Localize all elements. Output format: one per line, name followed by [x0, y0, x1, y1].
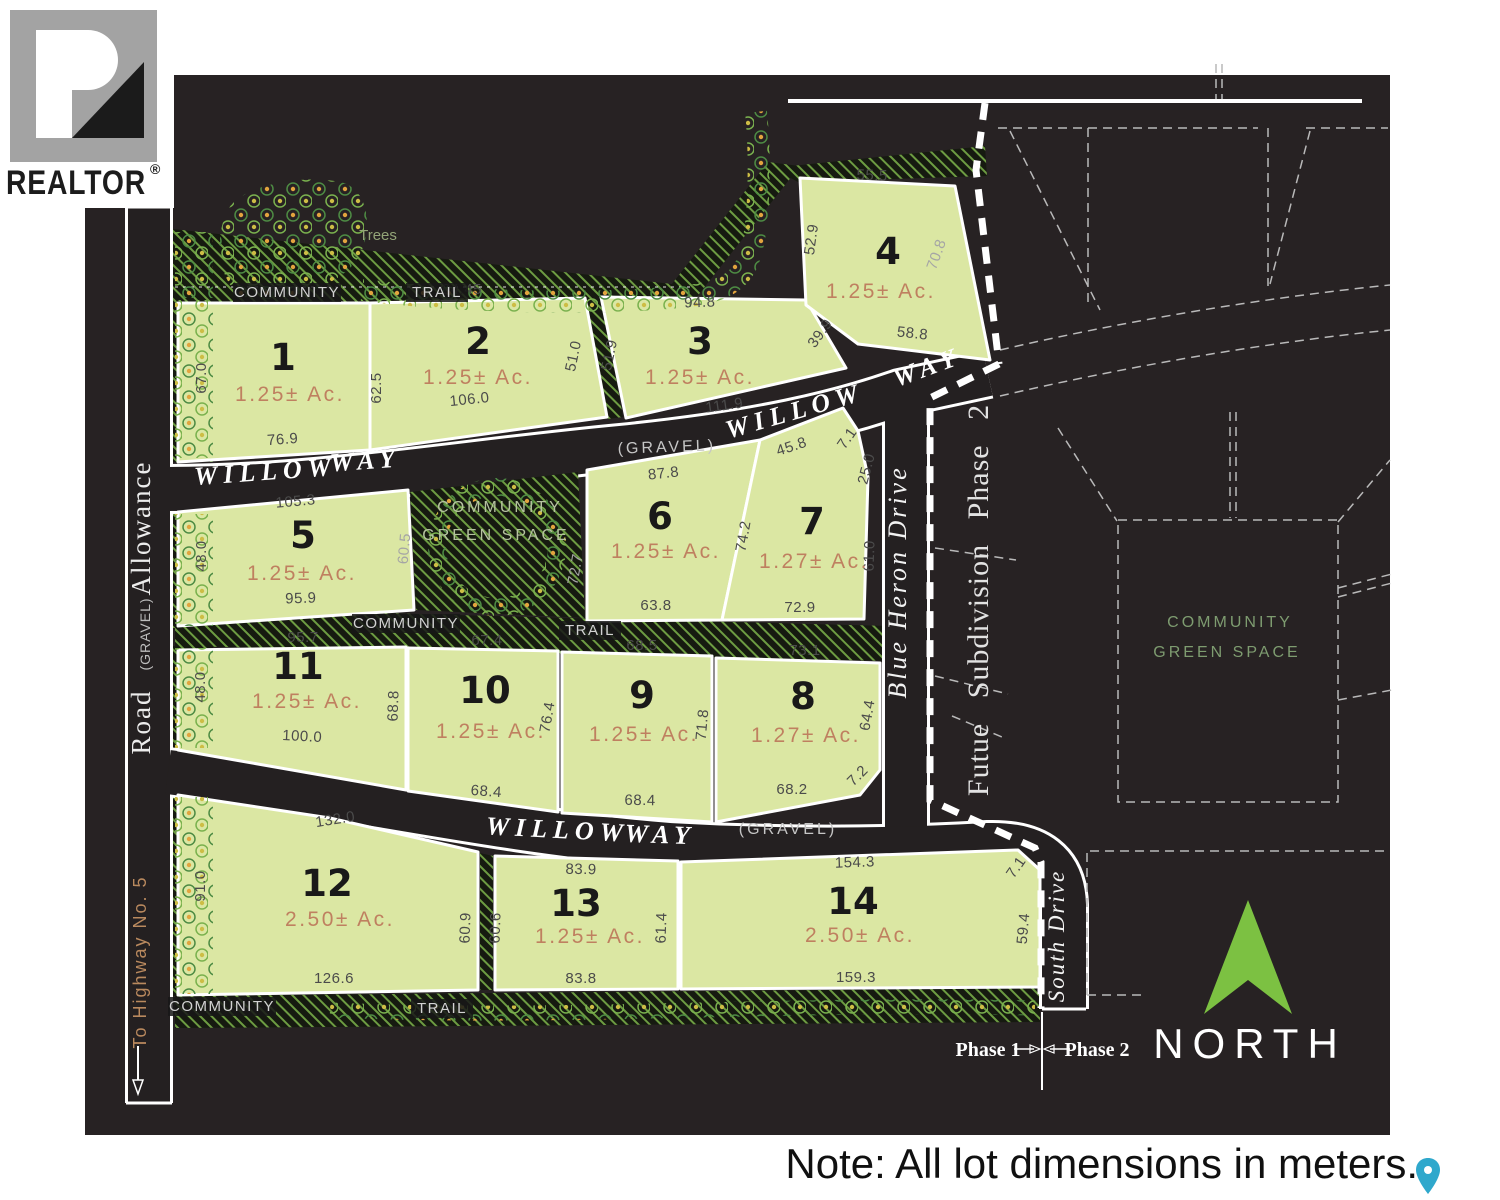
subdivision-plat-map: NORTH REALTOR ® 76.167.076.962.594.45106… [0, 0, 1500, 1200]
dimension-label: 68.5 [626, 637, 657, 654]
trail-label: COMMUNITY [234, 284, 340, 301]
dimension-label: 95.9 [285, 589, 317, 607]
dimension-label: 68.4 [470, 782, 502, 801]
dimension-label: 95.7 [287, 629, 318, 646]
dimension-label: 48.0 [192, 671, 209, 702]
lot-area-label: 1.27± Ac. [759, 550, 869, 573]
road-name-label: South Drive [1044, 870, 1069, 1003]
registered-trademark-symbol: ® [150, 161, 161, 177]
dimension-label: 60.6 [486, 912, 504, 944]
dimension-label: 68.4 [624, 792, 655, 810]
road-name-label: (GRAVEL) [617, 437, 716, 457]
map-annotation: GREEN SPACE [1153, 644, 1300, 661]
map-annotation: Phase 2 [1065, 1039, 1130, 1061]
lot-number: 7 [799, 500, 825, 543]
map-annotation: COMMUNITY [437, 499, 563, 516]
lot-number: 3 [687, 320, 713, 363]
lot-area-label: 1.25± Ac. [645, 366, 755, 389]
lot-number: 1 [270, 336, 296, 379]
lot-area-label: 1.25± Ac. [423, 366, 533, 389]
road-name-label: Road [126, 690, 156, 755]
lot-area-label: 1.25± Ac. [252, 690, 362, 713]
trail-label: COMMUNITY [353, 615, 459, 632]
lot-number: 6 [647, 495, 673, 538]
lot-number: 5 [290, 514, 316, 557]
dimension-label: 76.9 [267, 430, 299, 449]
green-space-phase1 [410, 472, 585, 618]
lot-area-label: 1.25± Ac. [826, 280, 936, 303]
lot-number: 9 [629, 674, 655, 717]
lot-area-label: 1.27± Ac. [751, 724, 861, 747]
lot-number: 8 [790, 675, 816, 718]
dimension-label: 55.5 [856, 166, 888, 184]
lot-number: 10 [459, 669, 511, 712]
dimension-label: 94.8 [684, 293, 716, 311]
map-annotation: Trees [359, 227, 397, 244]
map-annotation: GREEN SPACE [422, 527, 569, 544]
road-name-label: To Highway No. 5 [130, 875, 150, 1048]
road-name-label: (GRAVEL) [137, 597, 153, 670]
dimension-label: 73.1 [789, 642, 820, 659]
dimension-label: 48.0 [193, 540, 210, 571]
trail-label: TRAIL [565, 622, 615, 639]
lot-number: 11 [272, 645, 324, 688]
dimension-label: 62.5 [368, 372, 385, 403]
lot-number: 12 [301, 862, 353, 905]
lot-number: 13 [550, 882, 602, 925]
dimension-label: 100.0 [282, 727, 323, 746]
lot-number: 14 [827, 880, 879, 923]
dimension-label: 60.9 [456, 912, 474, 944]
road-name-label: Blue Heron Drive [883, 465, 912, 698]
map-annotation: COMMUNITY [1167, 614, 1293, 631]
lot-area-label: 1.25± Ac. [535, 925, 645, 948]
plat-map-page: NORTH REALTOR ® 76.167.076.962.594.45106… [0, 0, 1500, 1200]
dimension-label: 126.6 [314, 970, 354, 987]
dimension-label: 60.5 [395, 532, 415, 565]
dimension-label: 72.9 [784, 599, 815, 616]
dimension-label: 58.8 [896, 323, 929, 343]
dimension-label: 68.8 [384, 690, 402, 722]
dimension-label: 91.0 [192, 870, 209, 901]
map-annotation: Futue Subdivision Phase 2 [962, 404, 995, 796]
dimension-label: 87.8 [647, 463, 680, 483]
trail-label: TRAIL [417, 1000, 467, 1017]
road-name-label: (GRAVEL) [739, 821, 837, 838]
dimension-label: 67.4 [471, 632, 502, 649]
lot-number: 4 [875, 230, 901, 273]
dimension-label: 83.8 [565, 970, 596, 987]
dimension-label: 105.3 [275, 491, 316, 511]
road-name-label: WAY [329, 444, 402, 478]
dimension-label: 159.3 [836, 969, 876, 986]
road-name-label: Allowance [126, 461, 156, 596]
lot-area-label: 1.25± Ac. [247, 562, 357, 585]
dimension-label: 154.3 [835, 853, 876, 871]
dimension-label: 68.2 [776, 781, 807, 798]
realtor-wordmark: REALTOR [6, 164, 146, 202]
trail-label: COMMUNITY [169, 998, 275, 1015]
road-name-label: WAY [624, 819, 696, 850]
dimension-label: 67.0 [193, 362, 210, 393]
dimension-label: 63.8 [640, 597, 671, 614]
lot-area-label: 1.25± Ac. [436, 720, 546, 743]
compass-label: NORTH [1153, 1020, 1347, 1067]
lot-area-label: 1.25± Ac. [589, 723, 699, 746]
lot-area-label: 2.50± Ac. [285, 908, 395, 931]
dimensions-note: Note: All lot dimensions in meters. [785, 1140, 1418, 1187]
map-annotation: Phase 1 [956, 1039, 1021, 1061]
lot-number: 2 [465, 320, 491, 363]
lot-area-label: 2.50± Ac. [805, 924, 915, 947]
dimension-label: 83.9 [565, 861, 596, 879]
trail-label: TRAIL [412, 284, 462, 301]
lot-area-label: 1.25± Ac. [611, 540, 721, 563]
dimension-label: 59.4 [1014, 912, 1034, 945]
lot-area-label: 1.25± Ac. [235, 383, 345, 406]
realtor-logo: REALTOR ® [0, 0, 174, 208]
dimension-label: 61.4 [652, 912, 670, 944]
